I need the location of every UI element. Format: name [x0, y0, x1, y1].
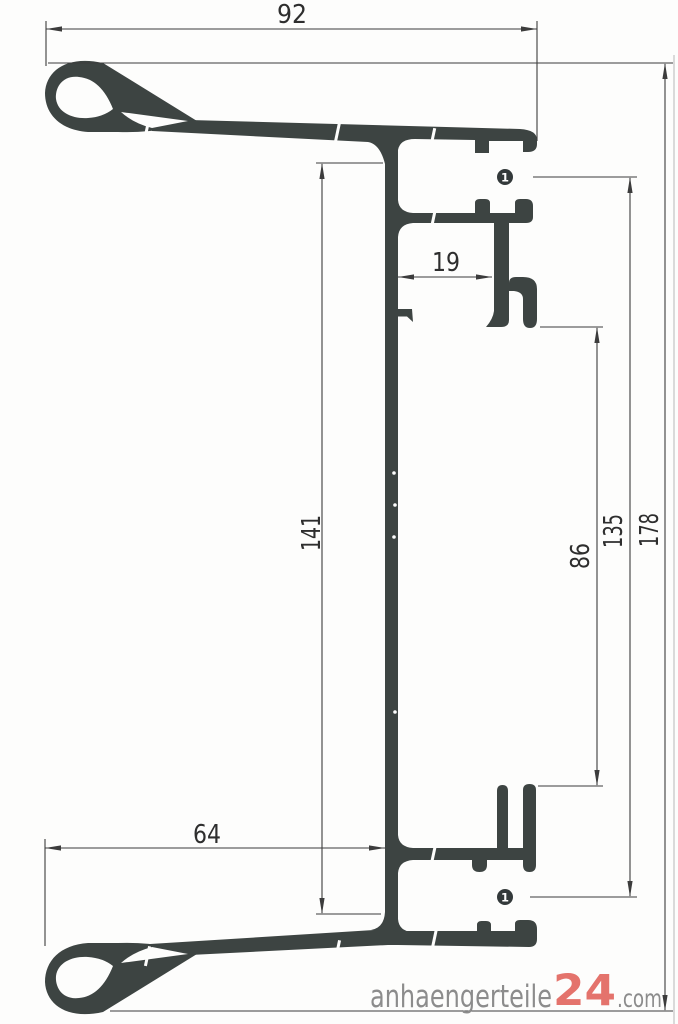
web-tab [398, 309, 413, 322]
marker-bottom-label: 1 [501, 891, 509, 905]
dim-label-bottom-width: 64 [193, 820, 221, 850]
top-latch-rail [398, 199, 533, 223]
dim-label-hook-offset: 19 [432, 248, 460, 278]
logo-tld-text[interactable]: .com [617, 984, 662, 1013]
bottom-latch-rail [398, 784, 536, 872]
web [385, 150, 398, 938]
fillet [398, 223, 413, 237]
hook-stem [486, 223, 509, 327]
top-flange [152, 119, 537, 164]
fillet [398, 919, 412, 932]
dim-label-opening-height: 86 [566, 543, 596, 569]
logo-name-text[interactable]: anhaengerteile [370, 979, 552, 1015]
marker-top-label: 1 [501, 171, 509, 185]
fillet [398, 200, 413, 213]
bottom-band [398, 920, 537, 947]
dim-label-total-height: 178 [635, 513, 665, 547]
hook-arch [509, 277, 537, 328]
watermark-logo[interactable]: anhaengerteile 24 .com [370, 966, 662, 1016]
profile-technical-drawing: 92 64 19 141 86 135 178 1 1 anhaengertei… [0, 0, 678, 1024]
logo-number-text[interactable]: 24 [553, 966, 616, 1016]
dim-label-marker-spacing: 135 [599, 514, 629, 548]
dim-label-web-height: 141 [297, 515, 327, 551]
dim-label-top-width: 92 [277, 0, 307, 30]
profile-cross-section [45, 61, 537, 1014]
dimension-lines [45, 21, 673, 1011]
fillet [371, 912, 385, 931]
fillet [398, 860, 413, 873]
fillet [398, 835, 413, 848]
drawing-sheet: 92 64 19 141 86 135 178 1 1 anhaengertei… [0, 0, 678, 1024]
